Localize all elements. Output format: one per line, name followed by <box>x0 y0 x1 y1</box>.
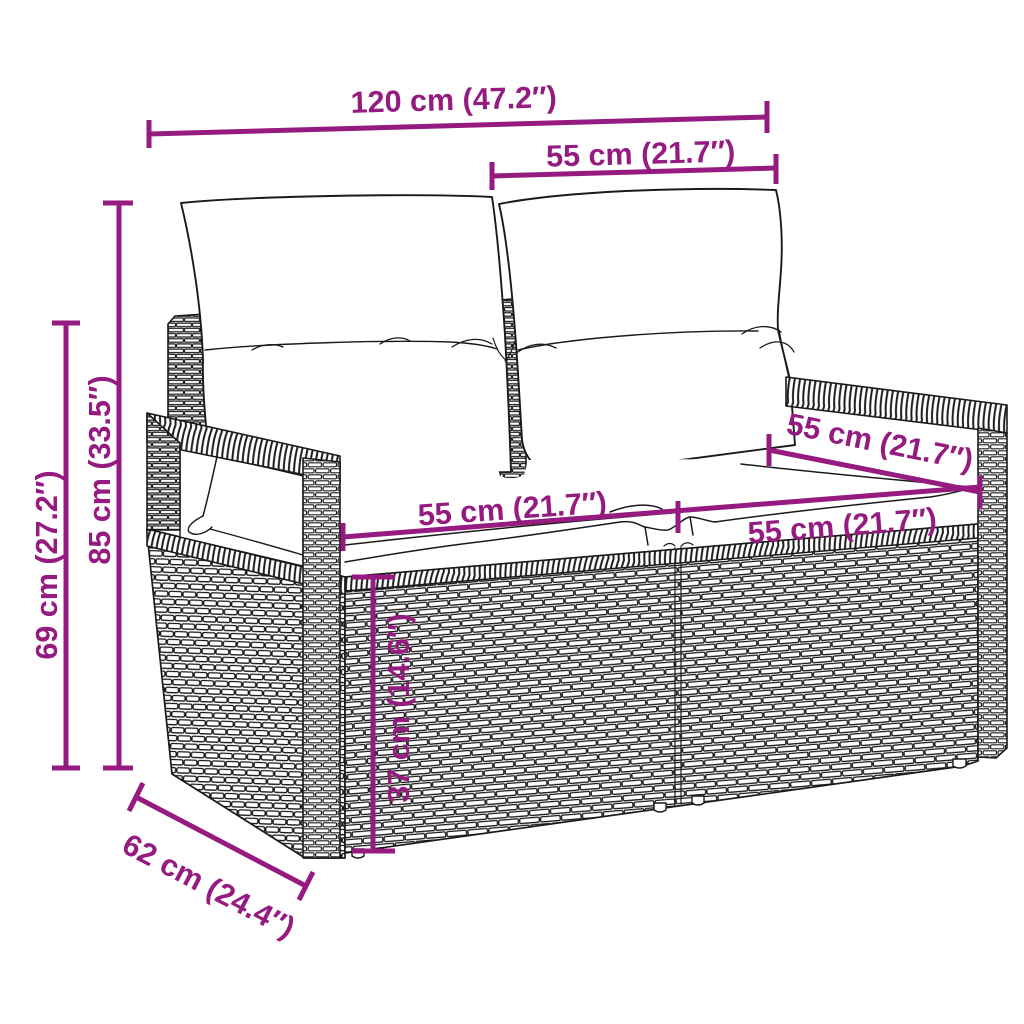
svg-text:55 cm (21.7″): 55 cm (21.7″) <box>546 134 736 173</box>
svg-text:69 cm (27.2″): 69 cm (27.2″) <box>30 470 64 659</box>
svg-text:37 cm (14.6″): 37 cm (14.6″) <box>382 613 416 802</box>
svg-text:85 cm (33.5″): 85 cm (33.5″) <box>83 375 117 564</box>
svg-text:120 cm (47.2″): 120 cm (47.2″) <box>350 80 557 120</box>
